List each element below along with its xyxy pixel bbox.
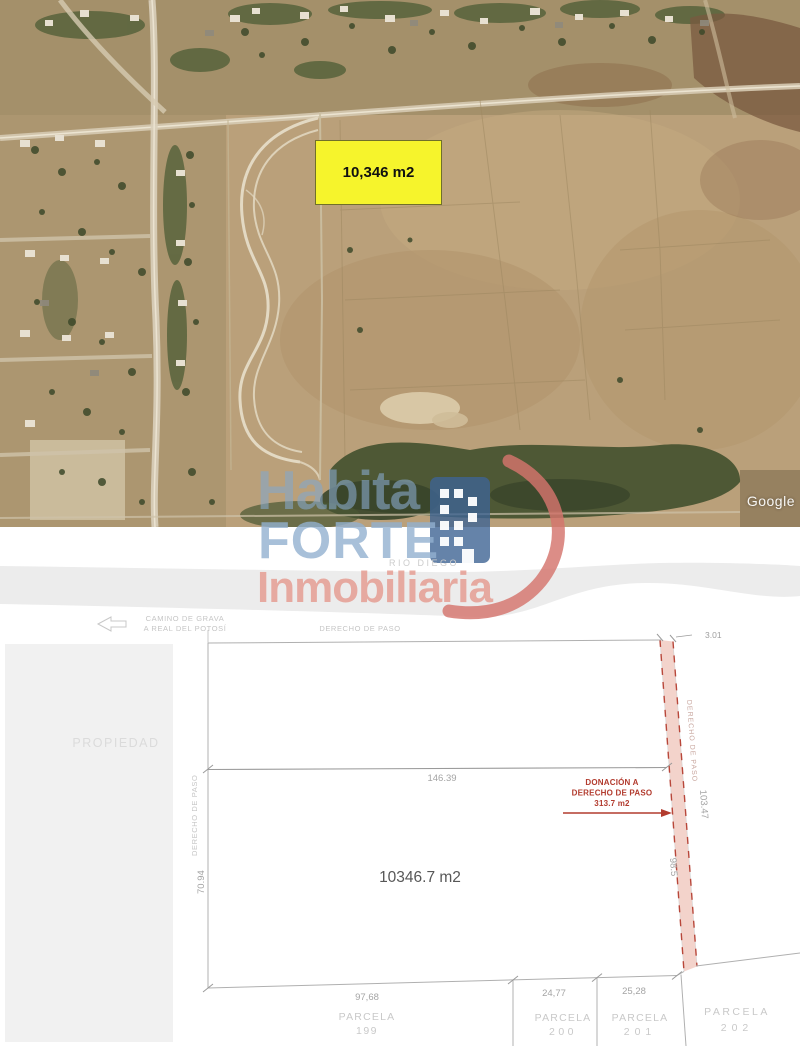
watermark-habita: Habita (257, 463, 419, 518)
listing-image: 10,346 m2 Google CAMINO DE GRAVA A REAL … (0, 0, 800, 1046)
watermark-inmobiliaria: Inmobiliaria (257, 566, 492, 610)
